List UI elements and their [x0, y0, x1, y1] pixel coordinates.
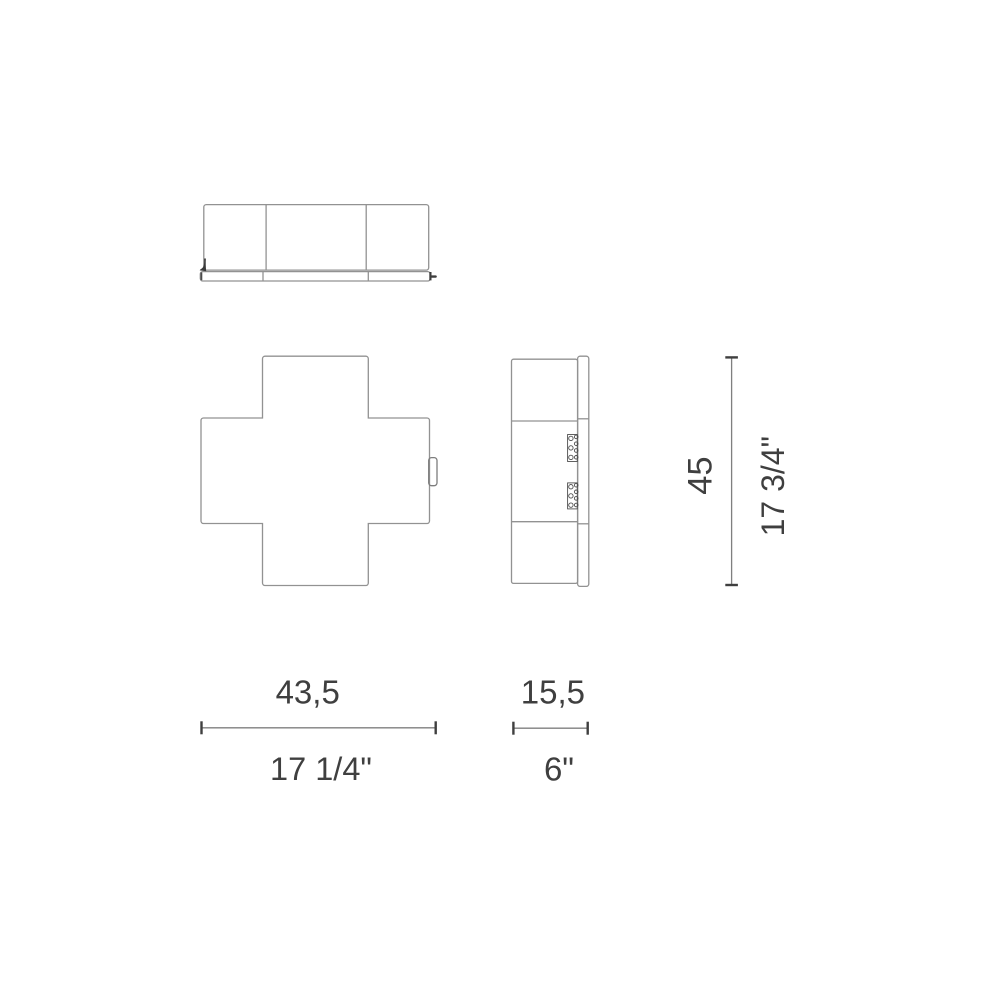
svg-text:45: 45: [681, 456, 719, 494]
svg-text:43,5: 43,5: [276, 674, 340, 711]
svg-text:15,5: 15,5: [521, 673, 585, 710]
svg-text:6": 6": [544, 750, 574, 787]
svg-text:17 1/4": 17 1/4": [270, 751, 372, 787]
svg-text:17 3/4": 17 3/4": [755, 436, 791, 536]
